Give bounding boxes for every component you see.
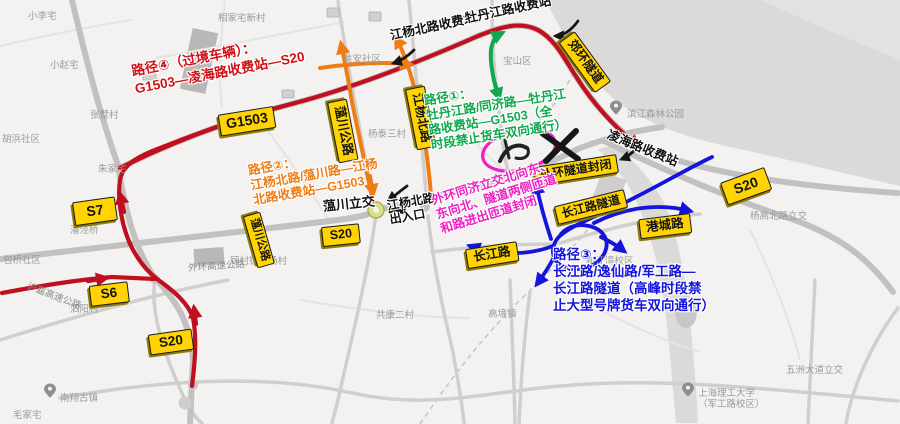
place-label: 毛家宅 [13,407,42,421]
place-label: 小李宅 [28,8,57,22]
route3-note-line: 止大型号牌货车双向通行） [553,297,715,314]
place-label: 相家宅新村 [218,10,266,24]
place-label: 胡浜社区 [2,131,40,145]
route3-note-line: 路径③： [553,246,715,263]
place-label: 宝山区 [503,53,532,67]
route3-note-line: 长江路/逸仙路/军工路— [553,263,715,280]
place-label: 高境镇 [488,306,517,320]
place-label: 滨江森林公园 [627,106,684,120]
badge-s20-mid: S20 [321,223,361,247]
place-label: 张墅村 [90,107,119,121]
place-label: （军工路校区） [698,396,765,410]
map-viewport[interactable]: 小李宅 相家宅新村 小赵宅 张墅村 胡浜社区 共安社区 宝山区 杨泰三村 滨江森… [0,0,900,424]
place-label: 包桥社区 [3,252,41,266]
park-pin-icon [610,101,622,115]
place-label: 杨高北路立交 [750,208,807,222]
town-pin-icon [44,384,56,398]
place-label: 共安社区 [343,51,381,65]
place-label: 朱家宅 [98,161,127,175]
route3-note-line: 长江路隧道（高峰时段禁 [553,280,715,297]
place-label: 小赵宅 [50,57,79,71]
route3-note: 路径③： 长江路/逸仙路/军工路— 长江路隧道（高峰时段禁 止大型号牌货车双向通… [553,246,715,314]
place-label: 共康二村 [376,307,414,321]
place-label: 五洲大道立交 [786,362,843,376]
place-label: 杨泰三村 [368,126,406,140]
place-label: 南翔古镇 [60,390,98,404]
